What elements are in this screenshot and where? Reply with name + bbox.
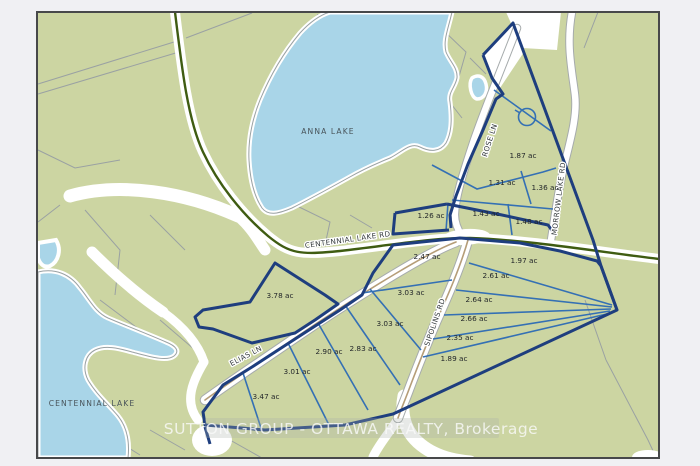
lot-acreage-label: 3.47 ac xyxy=(252,392,279,401)
watermark-text: SUTTON GROUP - OTTAWA REALTY, Brokerage xyxy=(164,420,538,438)
lot-acreage-label: 1.48 ac xyxy=(515,217,542,226)
lot-acreage-label: 1.36 ac xyxy=(531,183,558,192)
lot-acreage-label: 3.03 ac xyxy=(376,319,403,328)
lot-acreage-label: 1.87 ac xyxy=(509,151,536,160)
lot-acreage-label: 1.89 ac xyxy=(440,354,467,363)
lot-acreage-label: 2.35 ac xyxy=(446,333,473,342)
lot-acreage-label: 2.66 ac xyxy=(460,314,487,323)
lot-acreage-label: 1.26 ac xyxy=(417,211,444,220)
lot-acreage-label: 1.43 ac xyxy=(472,209,499,218)
lake-name-label: ANNA LAKE xyxy=(301,127,354,136)
lot-acreage-label: 2.83 ac xyxy=(349,344,376,353)
plat-map: ANNA LAKECENTENNIAL LAKE CENTENNIAL LAKE… xyxy=(0,0,700,466)
map-viewport: ANNA LAKECENTENNIAL LAKE CENTENNIAL LAKE… xyxy=(0,0,700,466)
watermark: SUTTON GROUP - OTTAWA REALTY, Brokerage xyxy=(164,418,538,438)
lot-acreage-label: 3.03 ac xyxy=(397,288,424,297)
lot-acreage-label: 1.97 ac xyxy=(510,256,537,265)
lot-acreage-label: 1.31 ac xyxy=(488,178,515,187)
lot-acreage-label: 2.90 ac xyxy=(315,347,342,356)
lot-acreage-label: 3.78 ac xyxy=(266,291,293,300)
lot-acreage-label: 2.61 ac xyxy=(482,271,509,280)
lot-acreage-label: 2.64 ac xyxy=(465,295,492,304)
lake-name-label: CENTENNIAL LAKE xyxy=(49,399,136,408)
anna-lake-east-bay xyxy=(470,76,486,99)
lot-acreage-label: 3.01 ac xyxy=(283,367,310,376)
lot-acreage-label: 2.47 ac xyxy=(413,252,440,261)
